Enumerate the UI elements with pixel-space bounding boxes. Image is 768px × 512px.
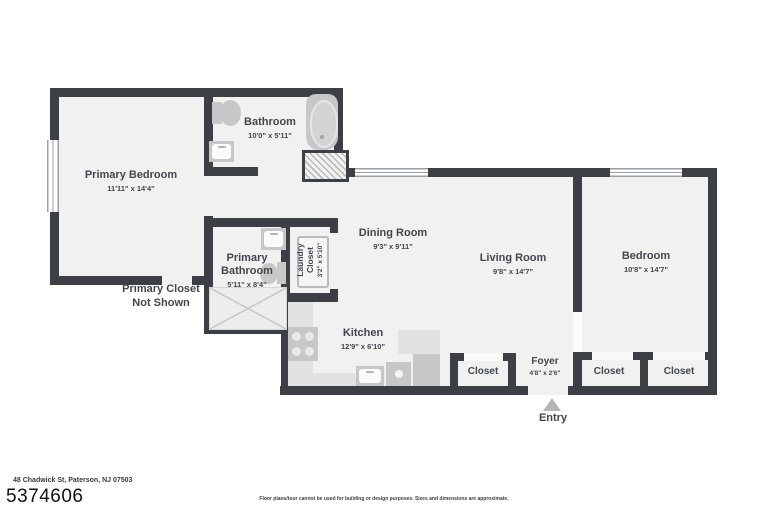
room-name: Primary Bedroom	[85, 169, 177, 182]
stove-burner	[305, 347, 314, 356]
kitchen-counter	[288, 302, 313, 327]
kitchen-label: Kitchen 12'9" x 6'10"	[341, 327, 385, 351]
dishwasher-icon	[386, 362, 411, 386]
wall	[204, 218, 338, 227]
door-opening	[653, 352, 705, 360]
wall	[573, 352, 592, 360]
room-dims: 4'8" x 2'6"	[530, 369, 561, 378]
toilet-icon	[220, 100, 241, 126]
sink-icon	[209, 141, 234, 162]
dining-room-label: Dining Room 9'3" x 9'11"	[359, 227, 427, 251]
wall	[50, 88, 343, 97]
wall	[640, 352, 648, 395]
room-dims: 3'2" x 5'10"	[316, 236, 325, 284]
door-opening	[592, 352, 633, 360]
living-closet-label: Closet	[468, 366, 499, 377]
refrigerator-icon	[413, 354, 440, 386]
note-line: Not Shown	[122, 296, 200, 310]
sink-icon	[261, 228, 286, 250]
bathtub-drain	[320, 135, 324, 139]
door-opening	[204, 176, 213, 216]
bathtub-basin	[310, 100, 338, 148]
laundry-closet-label: Laundry Closet 3'2" x 5'10"	[295, 236, 325, 284]
stove-burner	[305, 332, 314, 341]
primary-bathroom-label: Primary Bathroom 5'11" x 8'4"	[211, 252, 283, 289]
room-name: Kitchen	[341, 327, 385, 340]
note-line: Primary Closet	[122, 282, 200, 296]
listing-id: 5374606	[6, 486, 83, 508]
door-opening	[573, 312, 582, 352]
bathroom-label: Bathroom 10'0" x 5'11"	[244, 116, 296, 140]
disclaimer-text: Floor plans/tour cannot be used for buil…	[259, 496, 508, 502]
sink-basin	[212, 144, 231, 159]
shower-icon	[209, 287, 287, 330]
kitchen-counter	[288, 373, 356, 386]
foyer-label: Foyer 4'8" x 2'6"	[530, 355, 561, 378]
entry-door-opening	[528, 386, 568, 395]
door-opening	[258, 167, 295, 176]
room-name: Bedroom	[622, 250, 670, 263]
door-opening	[330, 233, 338, 289]
room-name: Foyer	[530, 355, 561, 368]
room-name: Dining Room	[359, 227, 427, 240]
wall	[705, 352, 717, 360]
wall	[450, 353, 464, 361]
door-opening	[464, 353, 503, 361]
bedroom-label: Bedroom 10'8" x 14'7"	[622, 250, 670, 274]
window	[610, 168, 682, 177]
room-dims: 9'3" x 9'11"	[359, 242, 427, 251]
hatched-shaft	[302, 150, 349, 182]
room-dims: 10'0" x 5'11"	[244, 131, 296, 140]
bedroom-closet-right-label: Closet	[664, 366, 695, 377]
room-dims: 12'9" x 6'10"	[341, 342, 385, 351]
wall	[281, 293, 338, 302]
room-dims: 9'8" x 14'7"	[480, 267, 547, 276]
sink-basin	[264, 231, 283, 247]
window	[47, 140, 59, 212]
bedroom-closet-left-label: Closet	[594, 366, 625, 377]
window	[355, 168, 428, 177]
room-name: Primary Bathroom	[211, 252, 283, 278]
entry-arrow-icon	[543, 398, 561, 411]
kitchen-counter	[398, 330, 440, 354]
address-text: 48 Chadwick St, Paterson, NJ 07503	[13, 477, 132, 484]
bathtub-icon	[306, 94, 338, 150]
shower-x-lines	[210, 288, 286, 329]
sink-basin	[359, 369, 381, 383]
room-name: Laundry Closet	[295, 236, 315, 284]
wall	[708, 168, 717, 395]
stove-icon	[288, 327, 318, 361]
wall	[204, 167, 258, 176]
room-name: Living Room	[480, 252, 547, 265]
wall	[573, 168, 582, 312]
stove-burner	[292, 332, 301, 341]
wall	[280, 386, 528, 395]
living-room-label: Living Room 9'8" x 14'7"	[480, 252, 547, 276]
primary-bedroom-label: Primary Bedroom 11'11" x 14'4"	[85, 169, 177, 193]
room-dims: 11'11" x 14'4"	[85, 184, 177, 193]
floor-plan: Primary Bedroom 11'11" x 14'4" Bathroom …	[0, 0, 768, 512]
kitchen-sink-icon	[356, 366, 384, 386]
room-dims: 10'8" x 14'7"	[622, 265, 670, 274]
entry-label: Entry	[539, 411, 567, 425]
room-name: Bathroom	[244, 116, 296, 129]
primary-closet-note: Primary Closet Not Shown	[122, 282, 200, 310]
wall	[503, 353, 516, 361]
room-dims: 5'11" x 8'4"	[211, 280, 283, 289]
stove-burner	[292, 347, 301, 356]
